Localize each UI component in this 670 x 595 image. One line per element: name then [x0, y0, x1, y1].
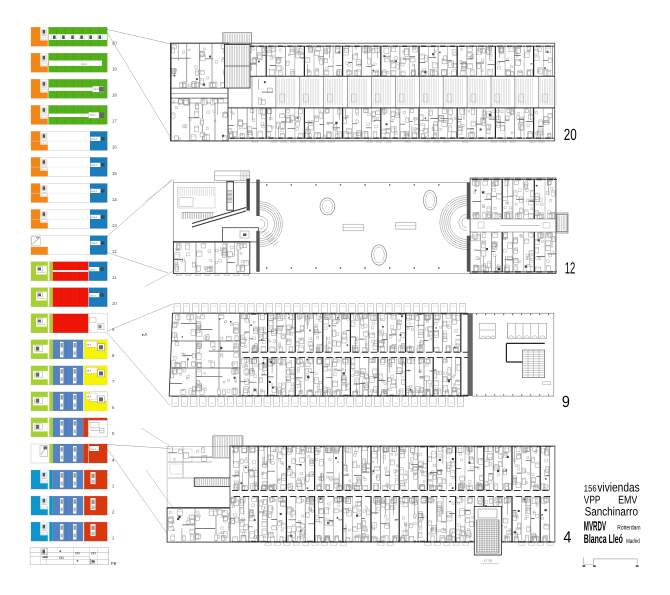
svg-text:8: 8 [112, 353, 115, 358]
svg-text:···: ··· [42, 64, 45, 67]
svg-text:13: 13 [112, 223, 117, 228]
svg-text:7: 7 [112, 379, 115, 384]
svg-text:···: ··· [42, 194, 45, 197]
svg-text:104.4: 104.4 [91, 242, 98, 245]
svg-text:12: 12 [565, 260, 576, 278]
svg-text:3: 3 [112, 483, 115, 488]
svg-text:11: 11 [112, 275, 117, 280]
svg-text:···: ··· [42, 90, 45, 93]
svg-text:···: ··· [42, 533, 45, 536]
svg-text:···: ··· [42, 116, 45, 119]
svg-text:17 18: 17 18 [484, 559, 492, 563]
svg-text:4: 4 [112, 457, 115, 462]
svg-text:···: ··· [42, 480, 45, 483]
svg-text:4: 4 [563, 528, 571, 546]
svg-text:9: 9 [562, 393, 570, 411]
svg-text:10: 10 [112, 301, 117, 306]
svg-text:··: ·· [43, 427, 45, 430]
svg-text:5: 5 [112, 431, 115, 436]
svg-text:PB: PB [111, 561, 117, 566]
svg-text:···: ··· [42, 220, 45, 223]
svg-text:··: ·· [43, 349, 45, 352]
svg-text:12: 12 [112, 249, 117, 254]
svg-text:104.4: 104.4 [91, 190, 98, 193]
svg-text:Madrid: Madrid [626, 538, 640, 545]
svg-text:104.4: 104.4 [90, 268, 97, 271]
svg-text:···: ··· [42, 168, 45, 171]
svg-text:68.9: 68.9 [87, 370, 92, 373]
svg-text:···: ··· [42, 507, 45, 510]
svg-text:68.9: 68.9 [87, 396, 92, 399]
svg-text:··: ·· [43, 401, 45, 404]
svg-text:Sanchinarro: Sanchinarro [585, 504, 639, 518]
svg-text:Blanca Lleó: Blanca Lleó [584, 532, 623, 546]
svg-text:---: --- [71, 244, 74, 247]
svg-text:15: 15 [112, 171, 117, 176]
svg-text:16: 16 [112, 145, 117, 150]
svg-text:---: --- [61, 244, 64, 247]
svg-text:104.4: 104.4 [90, 448, 97, 451]
svg-text:···: ··· [42, 38, 45, 41]
svg-text:18: 18 [112, 93, 117, 98]
svg-text:68.9: 68.9 [87, 343, 92, 346]
svg-text:▸A: ▸A [142, 332, 147, 337]
svg-text:19: 19 [112, 67, 117, 72]
svg-text:···: ··· [42, 142, 45, 145]
svg-text:6: 6 [112, 405, 115, 410]
svg-text:17: 17 [112, 119, 117, 124]
svg-text:104.4: 104.4 [90, 294, 97, 297]
svg-text:viviendas: viviendas [597, 480, 639, 494]
svg-text:··: ·· [43, 375, 45, 378]
svg-text:2: 2 [112, 509, 115, 514]
svg-text:Rotterdam: Rotterdam [617, 525, 640, 532]
svg-text:104.4: 104.4 [91, 216, 98, 219]
svg-text:156: 156 [584, 483, 597, 493]
svg-text:1: 1 [112, 535, 115, 540]
svg-text:20: 20 [564, 126, 577, 144]
svg-text:104.4: 104.4 [91, 164, 98, 167]
svg-text:14: 14 [112, 197, 117, 202]
svg-text:183.1: 183.1 [81, 63, 88, 66]
svg-text:104.4: 104.4 [91, 138, 98, 141]
svg-text:183.1: 183.1 [89, 114, 96, 117]
